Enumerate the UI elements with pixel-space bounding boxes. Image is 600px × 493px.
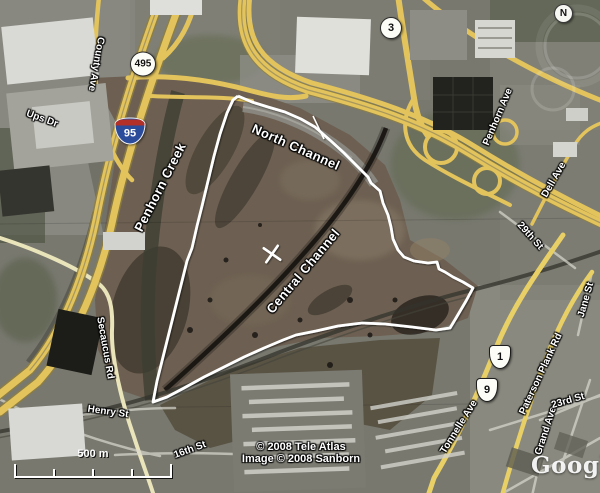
route-shield-495: 495: [130, 52, 156, 77]
route-shield-3: 3: [380, 17, 402, 39]
scale-bar-label: 500 m: [14, 448, 172, 460]
north-compass-icon[interactable]: N: [554, 4, 573, 23]
scale-bar: 500 m: [14, 448, 172, 478]
attribution-sanborn: Image © 2008 Sanborn: [242, 453, 360, 465]
google-watermark: Google: [531, 452, 600, 479]
attribution-tele-atlas: © 2008 Tele Atlas: [256, 441, 345, 453]
satellite-imagery[interactable]: [0, 0, 600, 493]
map-viewport[interactable]: Penhorn CreekNorth ChannelCentral Channe…: [0, 0, 600, 493]
